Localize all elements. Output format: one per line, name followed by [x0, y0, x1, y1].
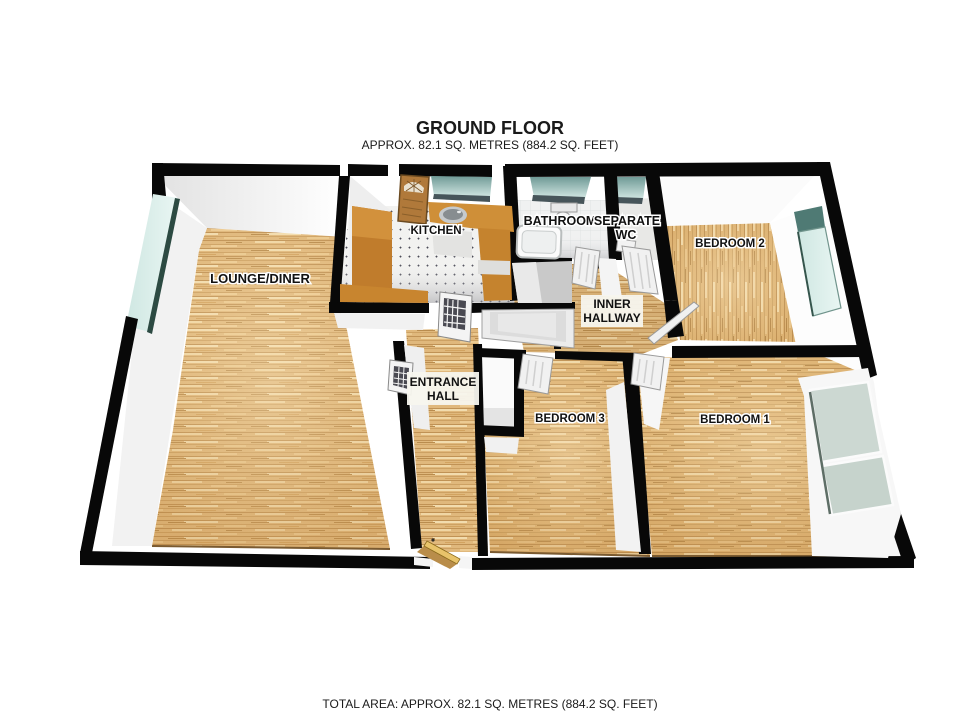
svg-text:WC: WC: [616, 228, 637, 242]
svg-text:INNER: INNER: [593, 297, 631, 311]
svg-text:LOUNGE/DINER: LOUNGE/DINER: [210, 271, 310, 286]
svg-text:TOTAL AREA: APPROX. 82.1 SQ.: TOTAL AREA: APPROX. 82.1 SQ. METRES (884…: [322, 697, 657, 711]
svg-text:KITCHEN: KITCHEN: [410, 225, 461, 237]
svg-text:BEDROOM 2: BEDROOM 2: [695, 238, 765, 250]
svg-text:BEDROOM 3: BEDROOM 3: [535, 413, 605, 425]
svg-text:HALLWAY: HALLWAY: [583, 311, 641, 325]
svg-text:ENTRANCE: ENTRANCE: [410, 375, 477, 389]
svg-text:BATHROOM: BATHROOM: [524, 214, 597, 228]
svg-text:APPROX. 82.1 SQ. METRES (884.: APPROX. 82.1 SQ. METRES (884.2 SQ. FEET): [362, 138, 619, 152]
svg-text:SEPARATE: SEPARATE: [594, 214, 660, 228]
svg-text:HALL: HALL: [427, 389, 459, 403]
svg-text:GROUND FLOOR: GROUND FLOOR: [416, 118, 564, 138]
svg-text:BEDROOM 1: BEDROOM 1: [700, 414, 770, 426]
